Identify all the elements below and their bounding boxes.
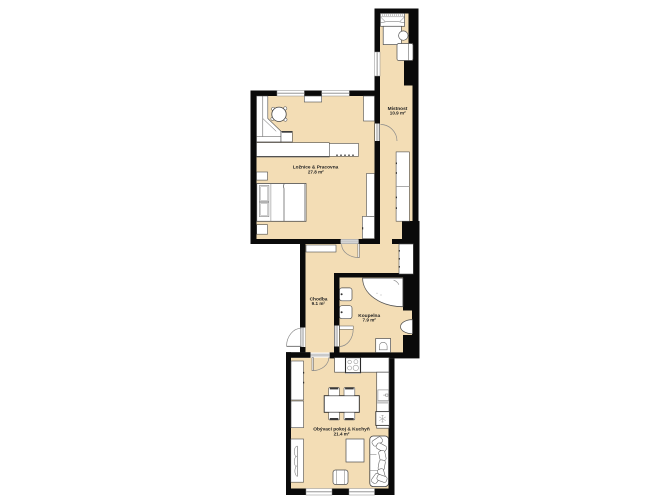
- svg-text:10.9 m²: 10.9 m²: [390, 111, 406, 116]
- svg-text:27.8 m²: 27.8 m²: [308, 170, 324, 175]
- svg-text:21.4 m²: 21.4 m²: [334, 432, 350, 437]
- svg-text:9.1 m²: 9.1 m²: [312, 301, 326, 306]
- svg-text:7.9 m²: 7.9 m²: [363, 317, 377, 322]
